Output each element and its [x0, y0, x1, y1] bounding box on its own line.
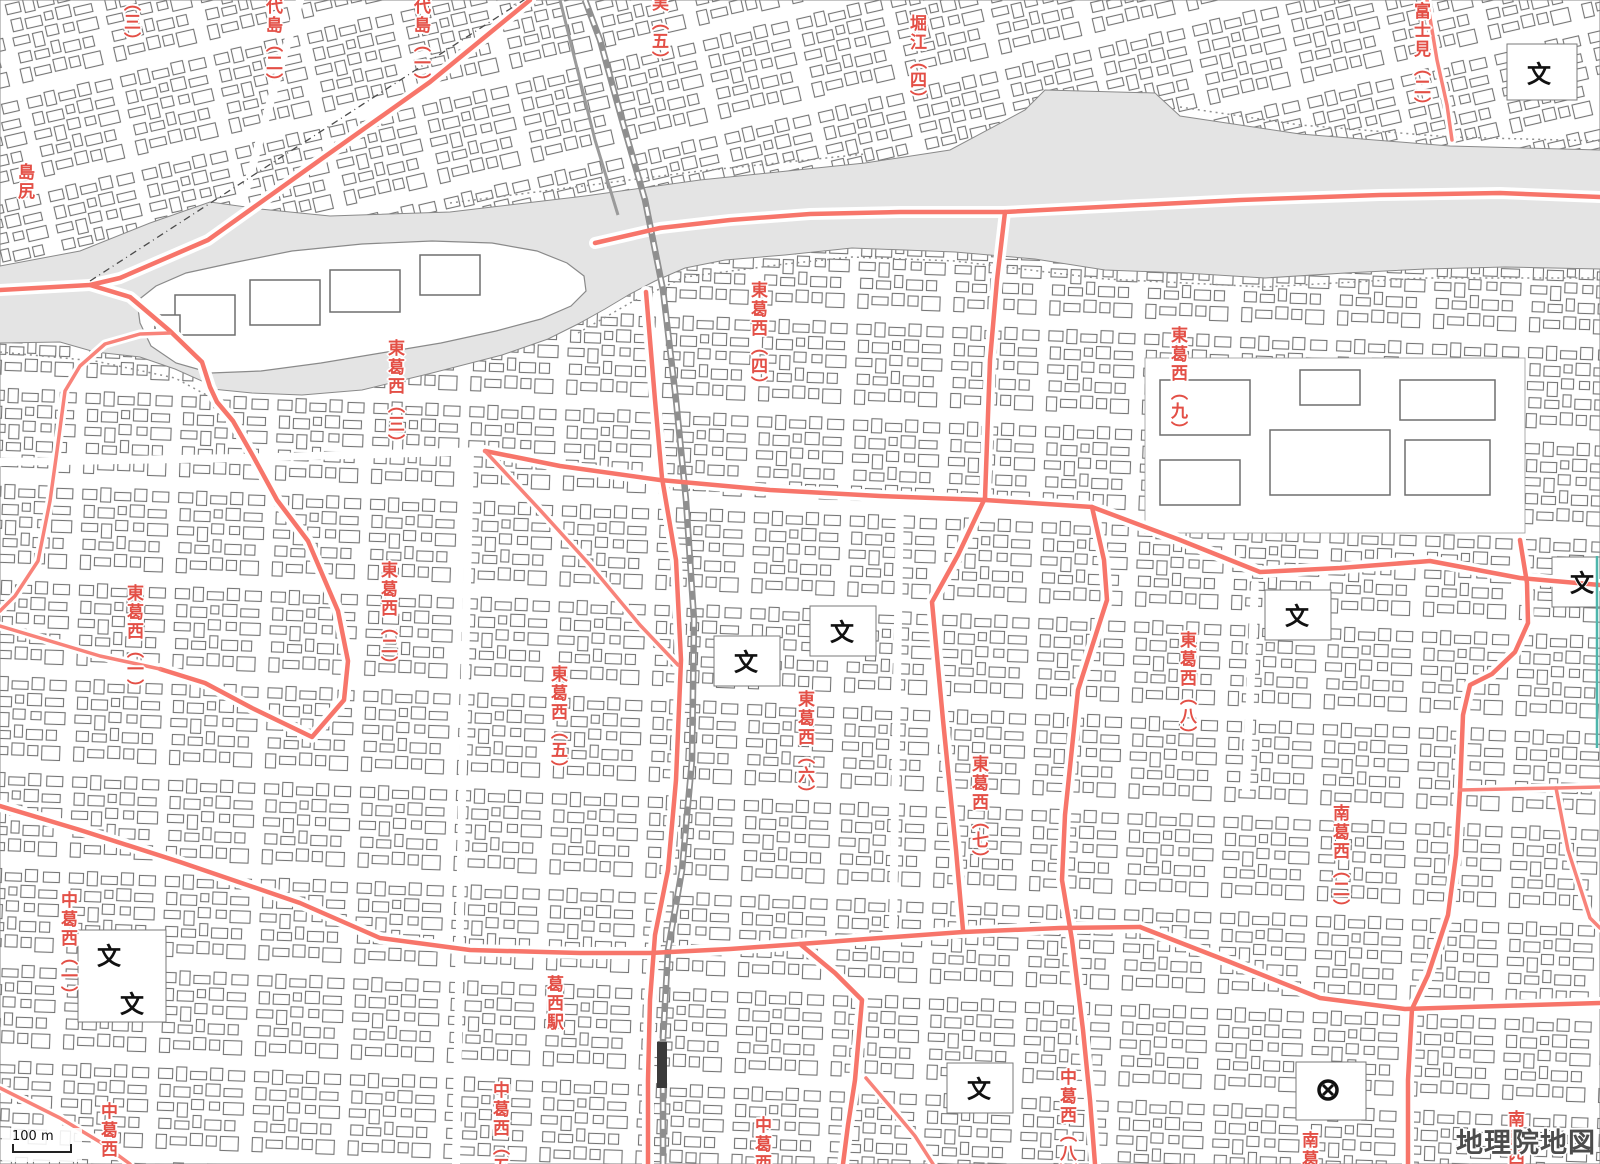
- map-canvas[interactable]: [0, 0, 1600, 1164]
- map-viewport[interactable]: 島尻（三）当代島（二）当代島（一）実（五）堀江（四）富士見（二）東葛西（三）東葛…: [0, 0, 1600, 1164]
- scale-bar-label: 100 m: [12, 1129, 82, 1144]
- scale-bar-rule: [12, 1144, 72, 1153]
- industrial-zone: [1145, 358, 1525, 533]
- attribution-link[interactable]: 地理院地図: [1456, 1121, 1596, 1160]
- scale-bar: 100 m: [2, 1128, 82, 1162]
- station-platform: [657, 1042, 667, 1088]
- police-station-icon: [1319, 1081, 1337, 1099]
